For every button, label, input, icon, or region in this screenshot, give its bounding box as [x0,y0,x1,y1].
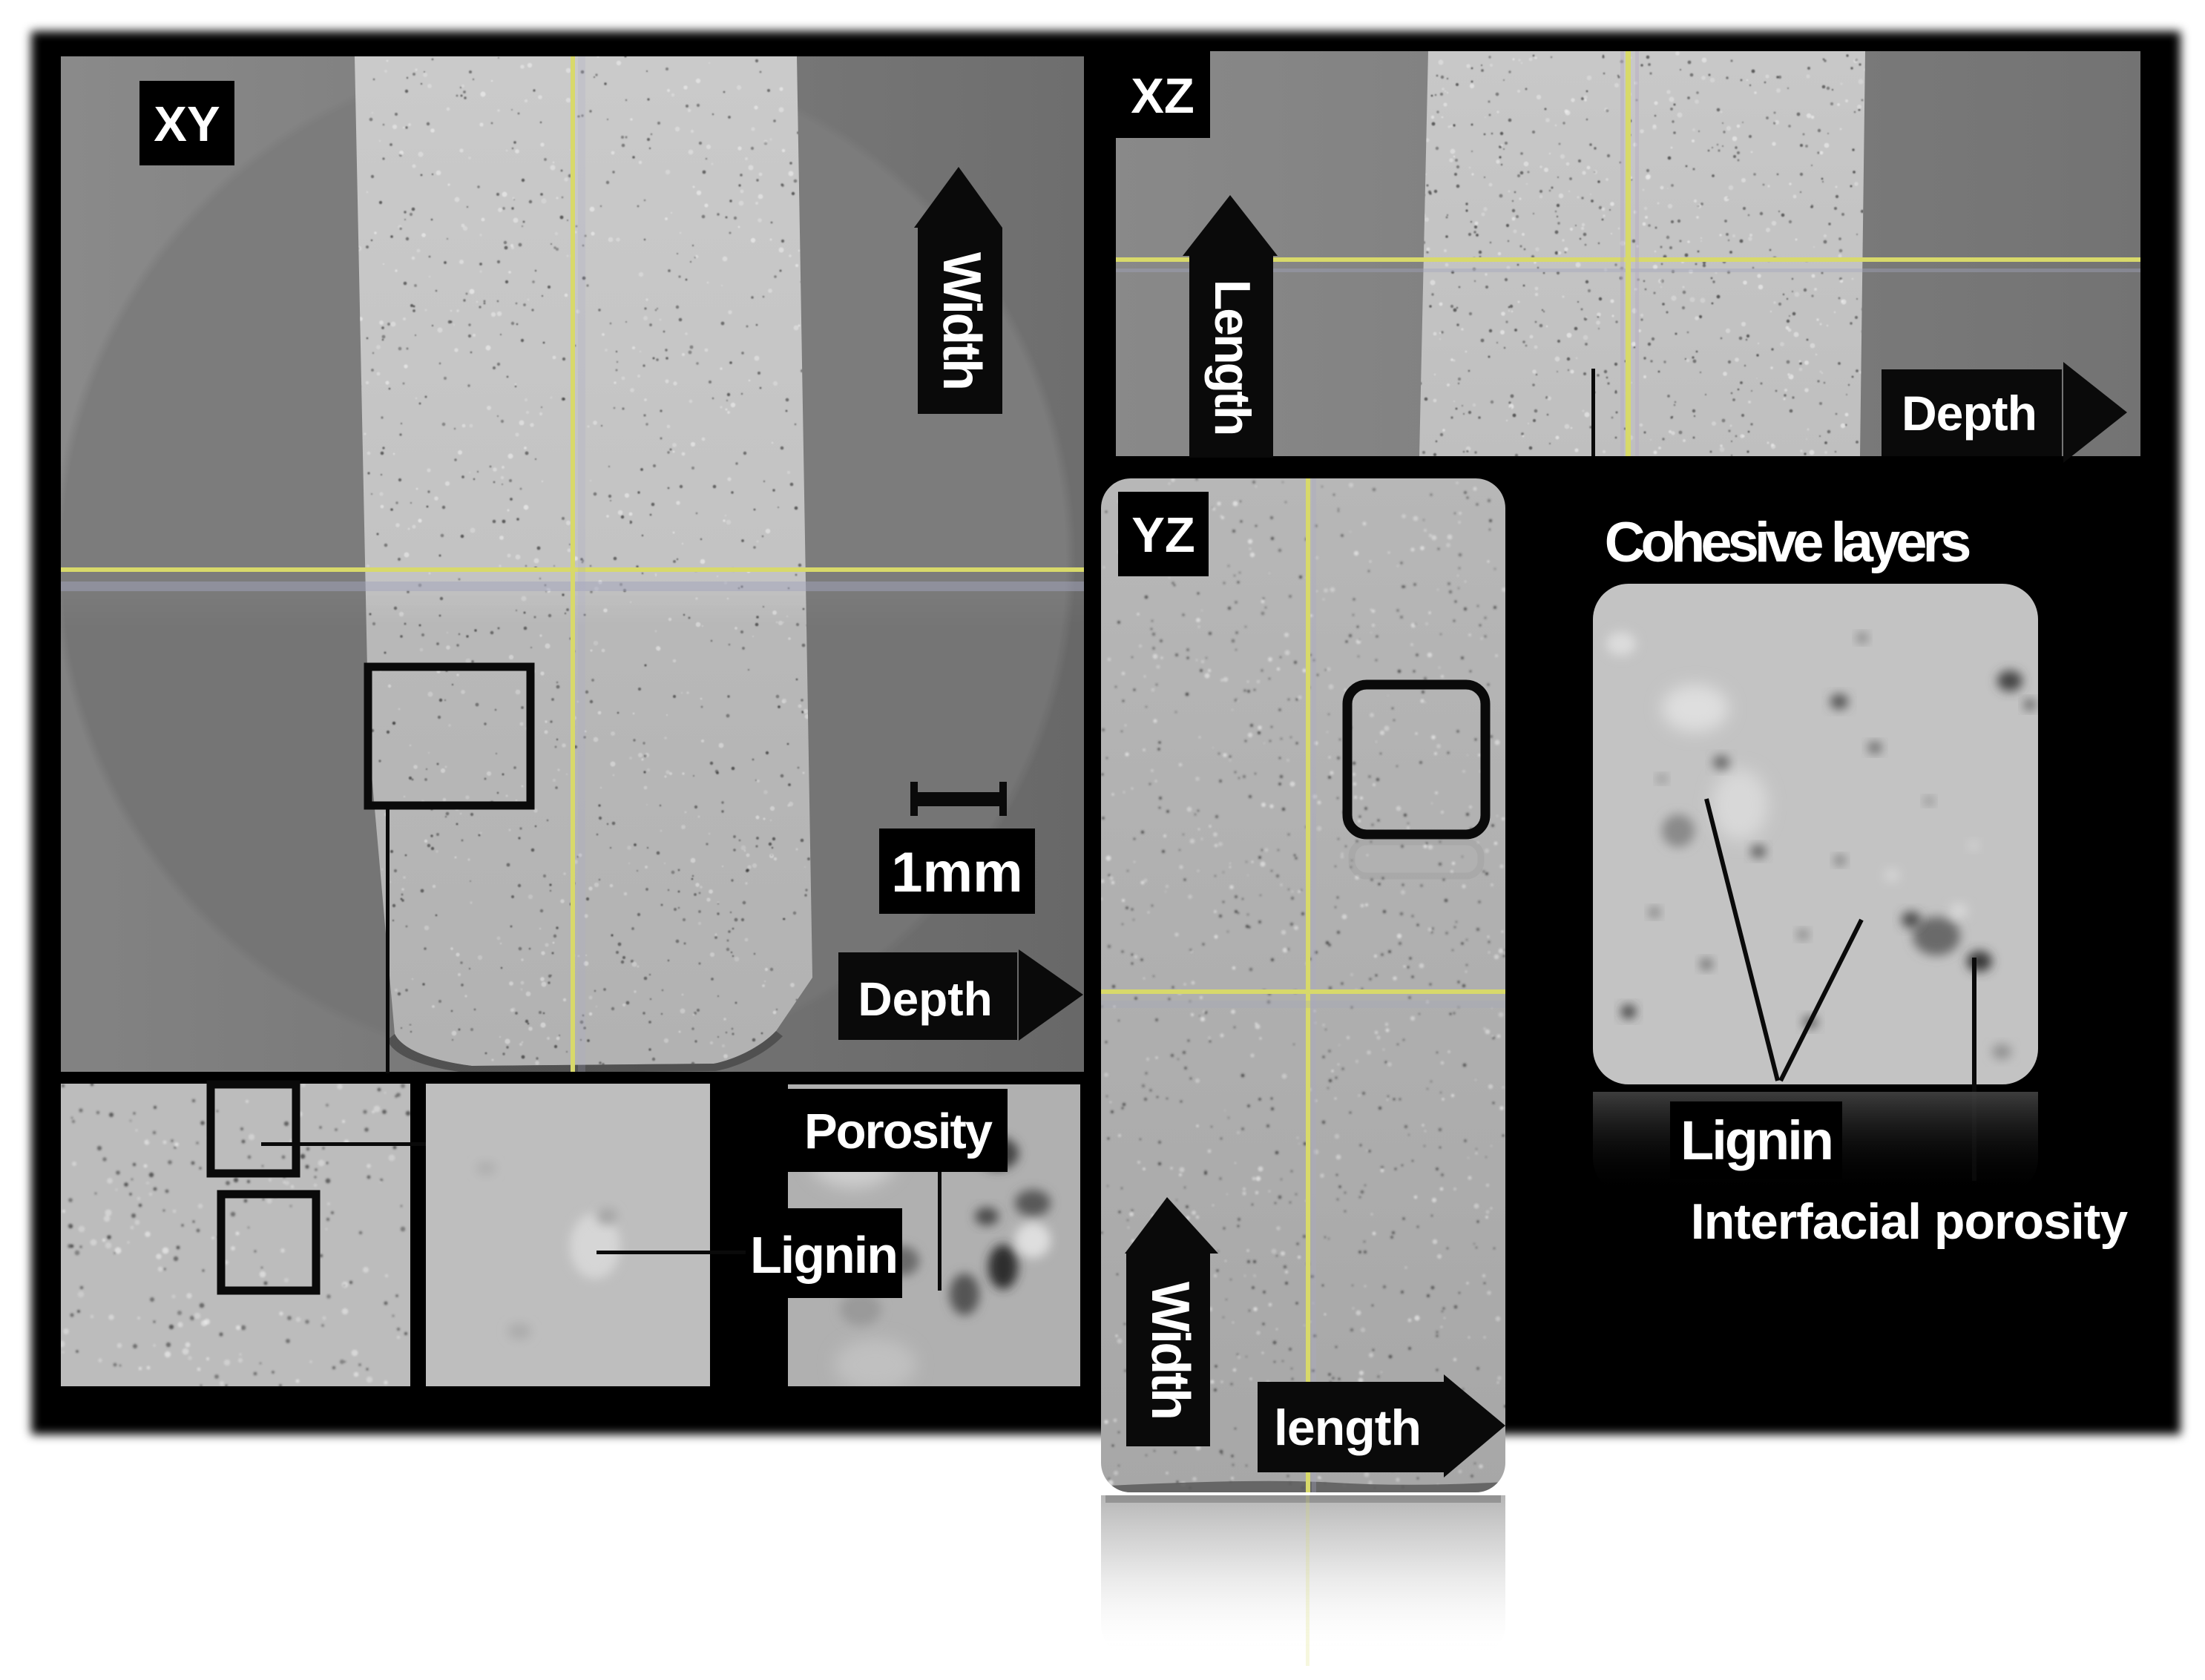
svg-text:Depth: Depth [858,972,992,1026]
svg-text:Lignin: Lignin [1680,1110,1832,1171]
svg-text:Porosity: Porosity [804,1104,993,1159]
svg-text:YZ: YZ [1131,507,1195,563]
svg-text:1mm: 1mm [891,841,1022,904]
svg-text:XY: XY [154,96,220,152]
svg-text:Cohesive layers: Cohesive layers [1605,511,1971,574]
svg-text:XZ: XZ [1131,68,1194,124]
svg-text:Depth: Depth [1902,386,2037,441]
svg-text:Width: Width [1140,1282,1200,1418]
svg-text:Interfacial porosity: Interfacial porosity [1691,1193,2129,1250]
svg-text:Length: Length [1204,280,1261,435]
svg-text:Lignin: Lignin [750,1226,897,1284]
svg-text:length: length [1274,1400,1421,1456]
svg-text:Width: Width [932,252,991,389]
